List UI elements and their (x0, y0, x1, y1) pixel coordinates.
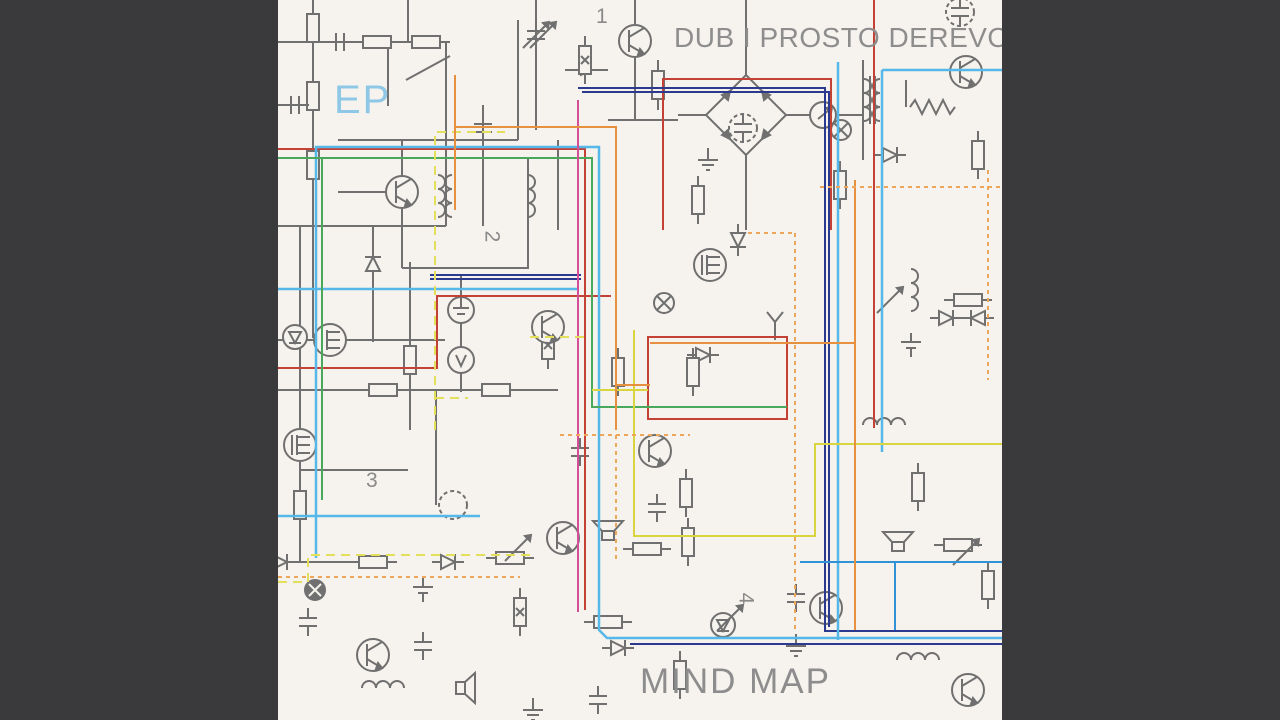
youtube-video-frame: EP DUB I PROSTO DEREVO MIND MAP 1 2 3 4 (0, 0, 1280, 720)
schematic-marker-3: 3 (366, 470, 378, 491)
schematic-marker-4: 4 (735, 593, 756, 605)
letterbox-right (1002, 0, 1280, 720)
wire-yellow (592, 330, 1002, 536)
ep-label: EP (334, 80, 391, 120)
transformer (864, 76, 880, 124)
letterbox-left (0, 0, 278, 720)
artist-title: DUB I PROSTO DEREVO (674, 24, 1002, 52)
schematic-marker-2: 2 (481, 231, 502, 243)
transformer-2 (438, 175, 452, 217)
album-cover-art: EP DUB I PROSTO DEREVO MIND MAP 1 2 3 4 (278, 0, 1002, 720)
album-title: MIND MAP (640, 664, 831, 699)
schematic-marker-1: 1 (596, 6, 608, 27)
